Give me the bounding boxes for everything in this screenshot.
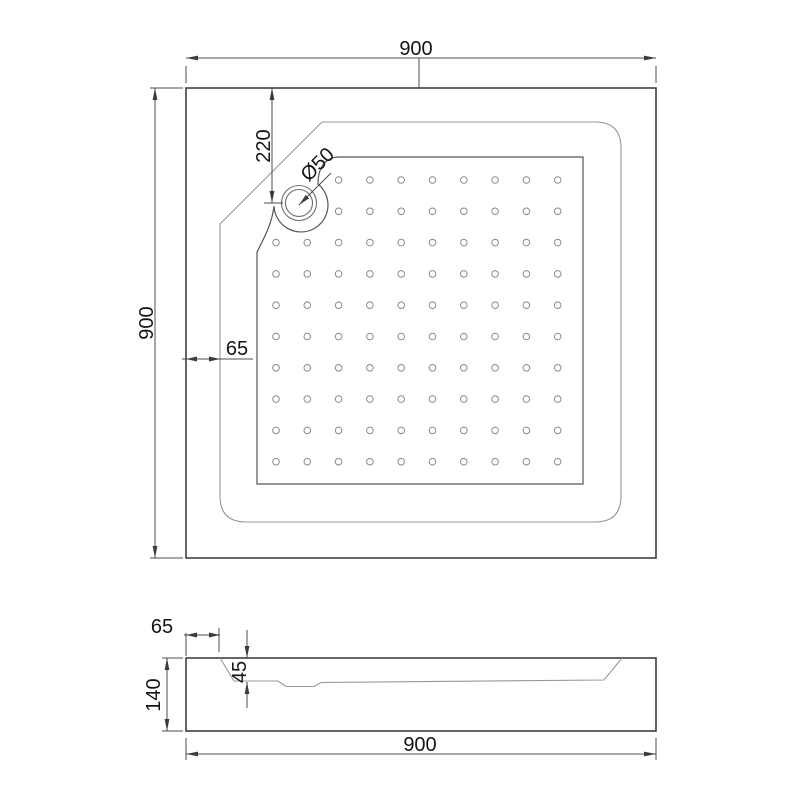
anti-slip-dot bbox=[367, 458, 374, 465]
anti-slip-dot bbox=[554, 396, 561, 403]
arrowhead bbox=[186, 633, 197, 638]
tray-body-outline bbox=[186, 658, 656, 731]
anti-slip-dot bbox=[461, 458, 468, 465]
anti-slip-dot bbox=[304, 333, 311, 340]
anti-slip-dots bbox=[273, 177, 561, 465]
anti-slip-dot bbox=[398, 208, 405, 215]
anti-slip-dot bbox=[461, 239, 468, 246]
anti-slip-dot bbox=[367, 177, 374, 184]
anti-slip-dot bbox=[492, 177, 499, 184]
anti-slip-dot bbox=[335, 271, 342, 278]
anti-slip-dot bbox=[429, 333, 436, 340]
anti-slip-dot bbox=[554, 333, 561, 340]
anti-slip-dot bbox=[367, 302, 374, 309]
tray-inner-profile bbox=[220, 658, 622, 687]
shower-tray-technical-drawing: 900 900 220 Ø50 65 65 45 140 900 bbox=[0, 0, 800, 800]
anti-slip-dot bbox=[429, 208, 436, 215]
drain-flange-circle bbox=[282, 186, 317, 221]
anti-slip-dot bbox=[461, 365, 468, 372]
anti-slip-dot bbox=[335, 365, 342, 372]
anti-slip-dot bbox=[492, 396, 499, 403]
anti-slip-dot bbox=[335, 427, 342, 434]
anti-slip-dot bbox=[398, 239, 405, 246]
drain-diameter-label: Ø50 bbox=[297, 144, 339, 186]
anti-slip-dot bbox=[398, 365, 405, 372]
anti-slip-dot bbox=[554, 239, 561, 246]
tray-floor-edge bbox=[257, 157, 583, 484]
anti-slip-dot bbox=[398, 302, 405, 309]
anti-slip-dot bbox=[523, 271, 530, 278]
drain-hole-circle bbox=[286, 190, 313, 217]
anti-slip-dot bbox=[554, 208, 561, 215]
technical-drawing-page: 900 900 220 Ø50 65 65 45 140 900 bbox=[0, 0, 800, 800]
rim-width-label: 65 bbox=[226, 338, 248, 360]
anti-slip-dot bbox=[554, 458, 561, 465]
anti-slip-dot bbox=[398, 458, 405, 465]
drain-offset-label: 220 bbox=[253, 129, 275, 162]
anti-slip-dot bbox=[273, 271, 280, 278]
anti-slip-dot bbox=[367, 365, 374, 372]
section-width-label: 900 bbox=[403, 734, 436, 756]
anti-slip-dot bbox=[492, 302, 499, 309]
anti-slip-dot bbox=[429, 271, 436, 278]
anti-slip-dot bbox=[523, 365, 530, 372]
anti-slip-dot bbox=[523, 239, 530, 246]
anti-slip-dot bbox=[335, 396, 342, 403]
anti-slip-dot bbox=[554, 302, 561, 309]
anti-slip-dot bbox=[398, 396, 405, 403]
anti-slip-dot bbox=[335, 177, 342, 184]
top-width-label: 900 bbox=[399, 38, 432, 60]
anti-slip-dot bbox=[398, 427, 405, 434]
anti-slip-dot bbox=[461, 333, 468, 340]
arrowhead bbox=[209, 633, 220, 638]
anti-slip-dot bbox=[367, 239, 374, 246]
arrowhead bbox=[209, 357, 220, 362]
anti-slip-dot bbox=[492, 458, 499, 465]
anti-slip-dot bbox=[523, 427, 530, 434]
anti-slip-dot bbox=[367, 333, 374, 340]
section-height-label: 140 bbox=[143, 678, 165, 711]
anti-slip-dot bbox=[461, 396, 468, 403]
anti-slip-dot bbox=[492, 365, 499, 372]
anti-slip-dot bbox=[273, 239, 280, 246]
anti-slip-dot bbox=[429, 458, 436, 465]
anti-slip-dot bbox=[273, 427, 280, 434]
left-height-label: 900 bbox=[136, 306, 158, 339]
anti-slip-dot bbox=[273, 458, 280, 465]
anti-slip-dot bbox=[523, 208, 530, 215]
anti-slip-dot bbox=[461, 271, 468, 278]
anti-slip-dot bbox=[304, 396, 311, 403]
section-rim-width-label: 65 bbox=[151, 616, 173, 638]
anti-slip-dot bbox=[461, 177, 468, 184]
anti-slip-dot bbox=[335, 302, 342, 309]
anti-slip-dot bbox=[523, 458, 530, 465]
anti-slip-dot bbox=[273, 365, 280, 372]
anti-slip-dot bbox=[304, 427, 311, 434]
anti-slip-dot bbox=[554, 365, 561, 372]
anti-slip-dot bbox=[398, 177, 405, 184]
anti-slip-dot bbox=[461, 427, 468, 434]
anti-slip-dot bbox=[523, 302, 530, 309]
anti-slip-dot bbox=[398, 271, 405, 278]
anti-slip-dot bbox=[492, 333, 499, 340]
anti-slip-dot bbox=[273, 333, 280, 340]
anti-slip-dot bbox=[335, 239, 342, 246]
anti-slip-dot bbox=[367, 396, 374, 403]
anti-slip-dot bbox=[554, 271, 561, 278]
anti-slip-dot bbox=[273, 302, 280, 309]
anti-slip-dot bbox=[367, 427, 374, 434]
anti-slip-dot bbox=[304, 365, 311, 372]
anti-slip-dot bbox=[429, 302, 436, 309]
anti-slip-dot bbox=[304, 458, 311, 465]
anti-slip-dot bbox=[304, 239, 311, 246]
anti-slip-dot bbox=[335, 458, 342, 465]
section-depth-label: 45 bbox=[229, 661, 251, 683]
anti-slip-dot bbox=[429, 177, 436, 184]
anti-slip-dot bbox=[398, 333, 405, 340]
anti-slip-dot bbox=[429, 239, 436, 246]
anti-slip-dot bbox=[335, 208, 342, 215]
anti-slip-dot bbox=[523, 396, 530, 403]
anti-slip-dot bbox=[554, 177, 561, 184]
anti-slip-dot bbox=[492, 239, 499, 246]
anti-slip-dot bbox=[492, 208, 499, 215]
anti-slip-dot bbox=[461, 208, 468, 215]
anti-slip-dot bbox=[492, 427, 499, 434]
anti-slip-dot bbox=[335, 333, 342, 340]
anti-slip-dot bbox=[304, 302, 311, 309]
anti-slip-dot bbox=[461, 302, 468, 309]
anti-slip-dot bbox=[429, 396, 436, 403]
anti-slip-dot bbox=[492, 271, 499, 278]
anti-slip-dot bbox=[523, 333, 530, 340]
anti-slip-dot bbox=[554, 427, 561, 434]
top-view-labels: 900 900 220 Ø50 65 bbox=[136, 38, 433, 360]
anti-slip-dot bbox=[367, 208, 374, 215]
anti-slip-dot bbox=[523, 177, 530, 184]
anti-slip-dot bbox=[367, 271, 374, 278]
anti-slip-dot bbox=[273, 396, 280, 403]
anti-slip-dot bbox=[429, 427, 436, 434]
anti-slip-dot bbox=[304, 271, 311, 278]
section-view bbox=[186, 658, 656, 731]
anti-slip-dot bbox=[429, 365, 436, 372]
arrowhead bbox=[186, 357, 197, 362]
